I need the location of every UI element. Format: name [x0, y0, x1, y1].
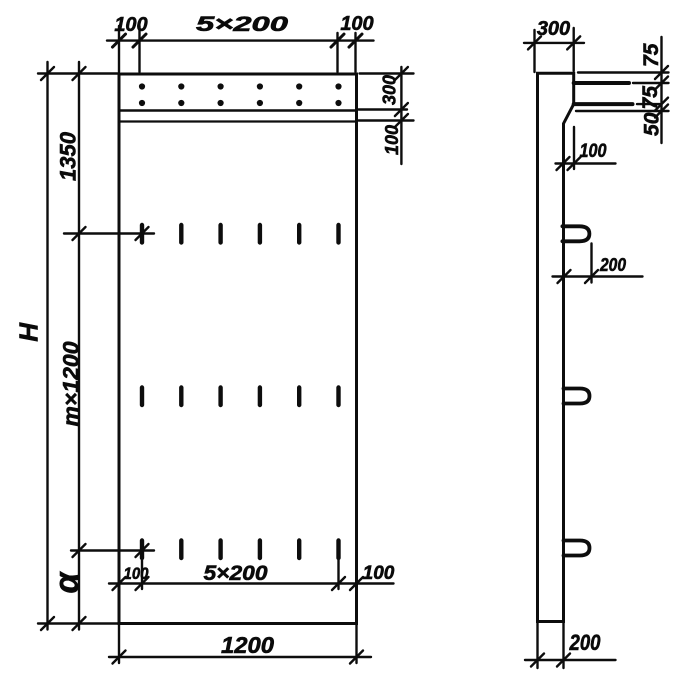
svg-text:100: 100: [124, 564, 149, 583]
svg-text:m×1200: m×1200: [59, 341, 84, 427]
svg-text:5×200: 5×200: [204, 562, 268, 585]
svg-text:1350: 1350: [56, 131, 81, 181]
svg-text:100: 100: [382, 125, 402, 155]
svg-text:5×200: 5×200: [196, 13, 288, 36]
svg-text:300: 300: [537, 18, 570, 40]
svg-text:75: 75: [640, 43, 663, 67]
svg-text:100: 100: [580, 141, 607, 162]
svg-text:100: 100: [363, 563, 395, 584]
svg-text:200: 200: [569, 630, 601, 655]
svg-text:50: 50: [641, 112, 664, 136]
svg-text:α: α: [48, 571, 86, 594]
svg-text:H: H: [14, 322, 44, 342]
svg-text:100: 100: [114, 14, 147, 36]
svg-text:100: 100: [340, 13, 373, 35]
svg-text:200: 200: [599, 255, 626, 275]
svg-text:75: 75: [639, 86, 662, 110]
svg-text:300: 300: [380, 75, 400, 105]
svg-text:1200: 1200: [221, 632, 274, 658]
